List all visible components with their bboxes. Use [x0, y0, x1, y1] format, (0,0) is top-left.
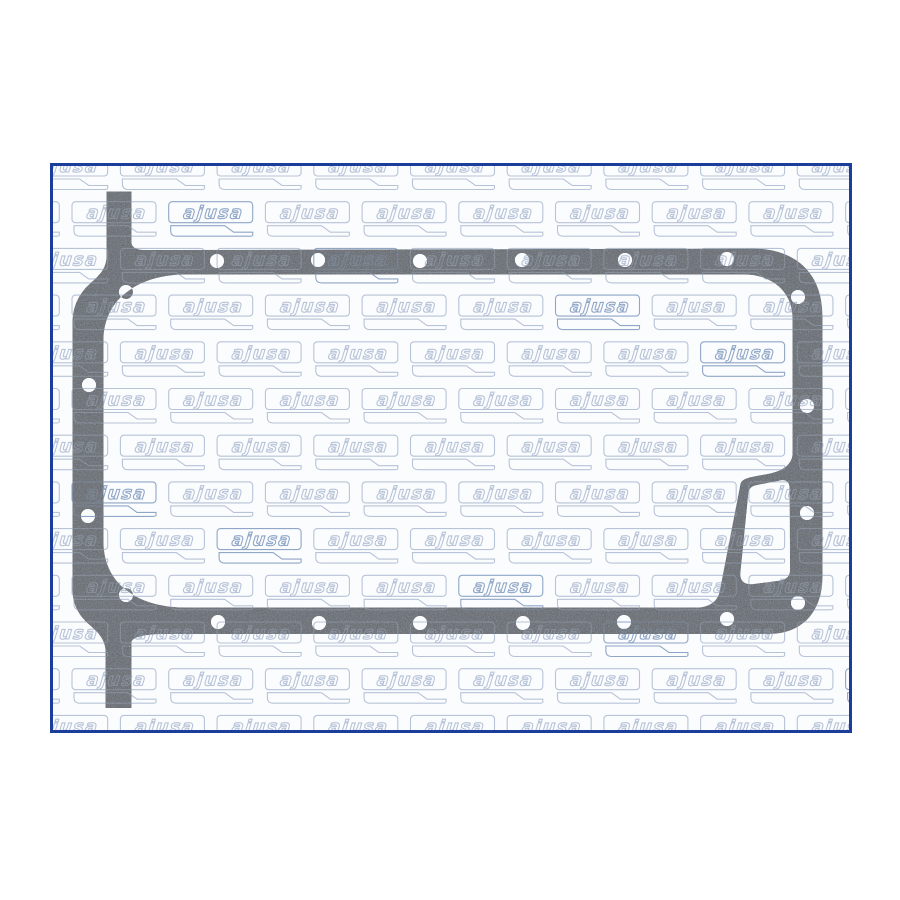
- watermark-tile: [314, 155, 398, 190]
- product-image: ajusa: [0, 0, 900, 900]
- watermark-tile: [701, 435, 785, 470]
- watermark-tile: [362, 295, 446, 330]
- watermark-tile: [604, 529, 688, 564]
- watermark-tile: [411, 342, 495, 377]
- watermark-tile: [652, 669, 736, 704]
- watermark-tile: [701, 342, 785, 377]
- watermark-tile: [362, 669, 446, 704]
- watermark-tile: [459, 295, 543, 330]
- watermark-tile: [652, 389, 736, 424]
- watermark-tile: [120, 435, 204, 470]
- watermark-tile: [120, 155, 204, 190]
- watermark-tile: [411, 715, 495, 750]
- watermark-tile: [846, 202, 900, 237]
- watermark-tile: [362, 389, 446, 424]
- watermark-tile: [265, 202, 349, 237]
- watermark-tile: [411, 155, 495, 190]
- watermark-pattern: [0, 155, 900, 750]
- watermark-tile: [846, 482, 900, 517]
- watermark-tile: [0, 248, 11, 283]
- watermark-tile: [265, 575, 349, 610]
- watermark-tile: [0, 155, 11, 190]
- watermark-tile: [169, 202, 253, 237]
- watermark-tile: [0, 622, 11, 657]
- watermark-tile: [459, 389, 543, 424]
- watermark-tile: [507, 342, 591, 377]
- watermark-tile: [265, 669, 349, 704]
- watermark-tile: [507, 529, 591, 564]
- watermark-tile: [749, 202, 833, 237]
- watermark-tile: [556, 482, 640, 517]
- watermark-tile: [797, 622, 881, 657]
- watermark-tile: [749, 669, 833, 704]
- watermark-tile: [604, 155, 688, 190]
- watermark-tile: [169, 575, 253, 610]
- watermark-tile: [0, 295, 59, 330]
- watermark-tile: [314, 342, 398, 377]
- watermark-tile: [362, 575, 446, 610]
- watermark-tile: [217, 435, 301, 470]
- watermark-tile: [459, 669, 543, 704]
- watermark-tile: [652, 202, 736, 237]
- watermark-tile: [556, 669, 640, 704]
- watermark-tile: [314, 715, 398, 750]
- watermark-tile: [556, 202, 640, 237]
- watermark-tile: [846, 575, 900, 610]
- watermark-tile: [169, 295, 253, 330]
- watermark-tile: [846, 295, 900, 330]
- watermark-tile: [0, 482, 59, 517]
- watermark-tile: [0, 342, 11, 377]
- watermark-tile: [217, 342, 301, 377]
- watermark-tile: [169, 389, 253, 424]
- watermark-tile: [0, 669, 59, 704]
- watermark-tile: [169, 669, 253, 704]
- watermark-tile: [459, 202, 543, 237]
- watermark-tile: [701, 715, 785, 750]
- watermark-tile: [217, 155, 301, 190]
- watermark-tile: [507, 155, 591, 190]
- watermark-tile: [556, 389, 640, 424]
- watermark-tile: [459, 482, 543, 517]
- watermark-tile: [846, 669, 900, 704]
- watermark-tile: [24, 155, 108, 190]
- watermark-tile: [652, 482, 736, 517]
- watermark-tile: [24, 715, 108, 750]
- watermark-tile: [314, 529, 398, 564]
- watermark-tile: [556, 295, 640, 330]
- watermark-tile: [556, 575, 640, 610]
- watermark-tile: [362, 202, 446, 237]
- watermark-tile: [652, 295, 736, 330]
- watermark-tile: [120, 529, 204, 564]
- watermark-tile: [604, 435, 688, 470]
- watermark-tile: [604, 715, 688, 750]
- watermark-tile: [217, 715, 301, 750]
- watermark-tile: [797, 715, 881, 750]
- watermark-tile: [604, 342, 688, 377]
- watermark-tile: [314, 435, 398, 470]
- watermark-tile: [169, 482, 253, 517]
- watermark-tile: [0, 575, 59, 610]
- watermark-tile: [0, 202, 59, 237]
- watermark-tile: [265, 389, 349, 424]
- watermark-tile: [0, 715, 11, 750]
- watermark-tile: [120, 715, 204, 750]
- watermark-tile: [507, 435, 591, 470]
- watermark-tile: [507, 715, 591, 750]
- watermark-tile: [797, 155, 881, 190]
- watermark-tile: [362, 482, 446, 517]
- watermark-tile: [0, 389, 59, 424]
- product-photo-page: { "page": { "background": "#ffffff" }, "…: [0, 0, 900, 900]
- watermark-tile: [265, 482, 349, 517]
- watermark-tile: [120, 342, 204, 377]
- watermark-tile: [217, 529, 301, 564]
- watermark-tile: [846, 389, 900, 424]
- watermark-tile: [0, 529, 11, 564]
- watermark-tile: [701, 155, 785, 190]
- watermark-tile: [459, 575, 543, 610]
- watermark-tile: [24, 248, 108, 283]
- watermark-tile: [265, 295, 349, 330]
- watermark-tile: [0, 435, 11, 470]
- watermark-tile: [411, 529, 495, 564]
- watermark-tile: [411, 435, 495, 470]
